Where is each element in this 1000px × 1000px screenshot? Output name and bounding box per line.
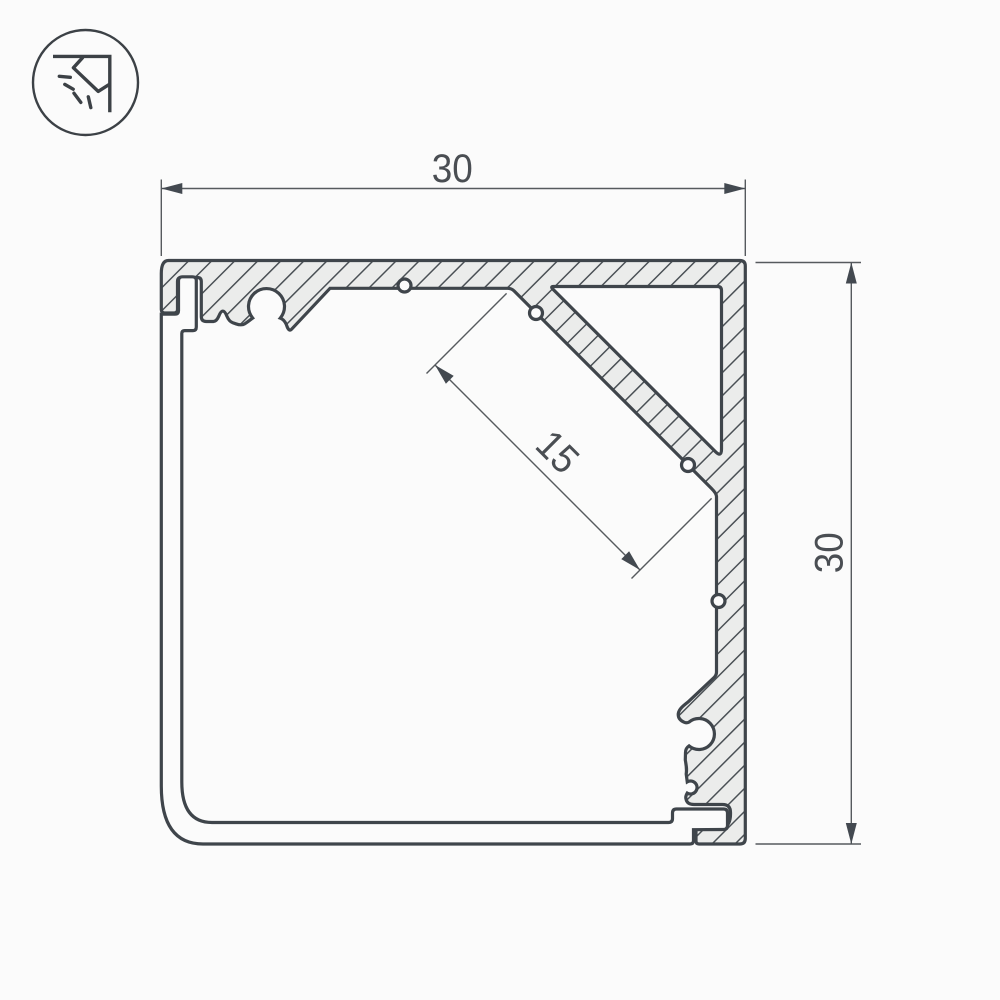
svg-text:30: 30	[432, 147, 473, 191]
svg-text:30: 30	[808, 532, 852, 573]
svg-text:15: 15	[527, 422, 587, 482]
